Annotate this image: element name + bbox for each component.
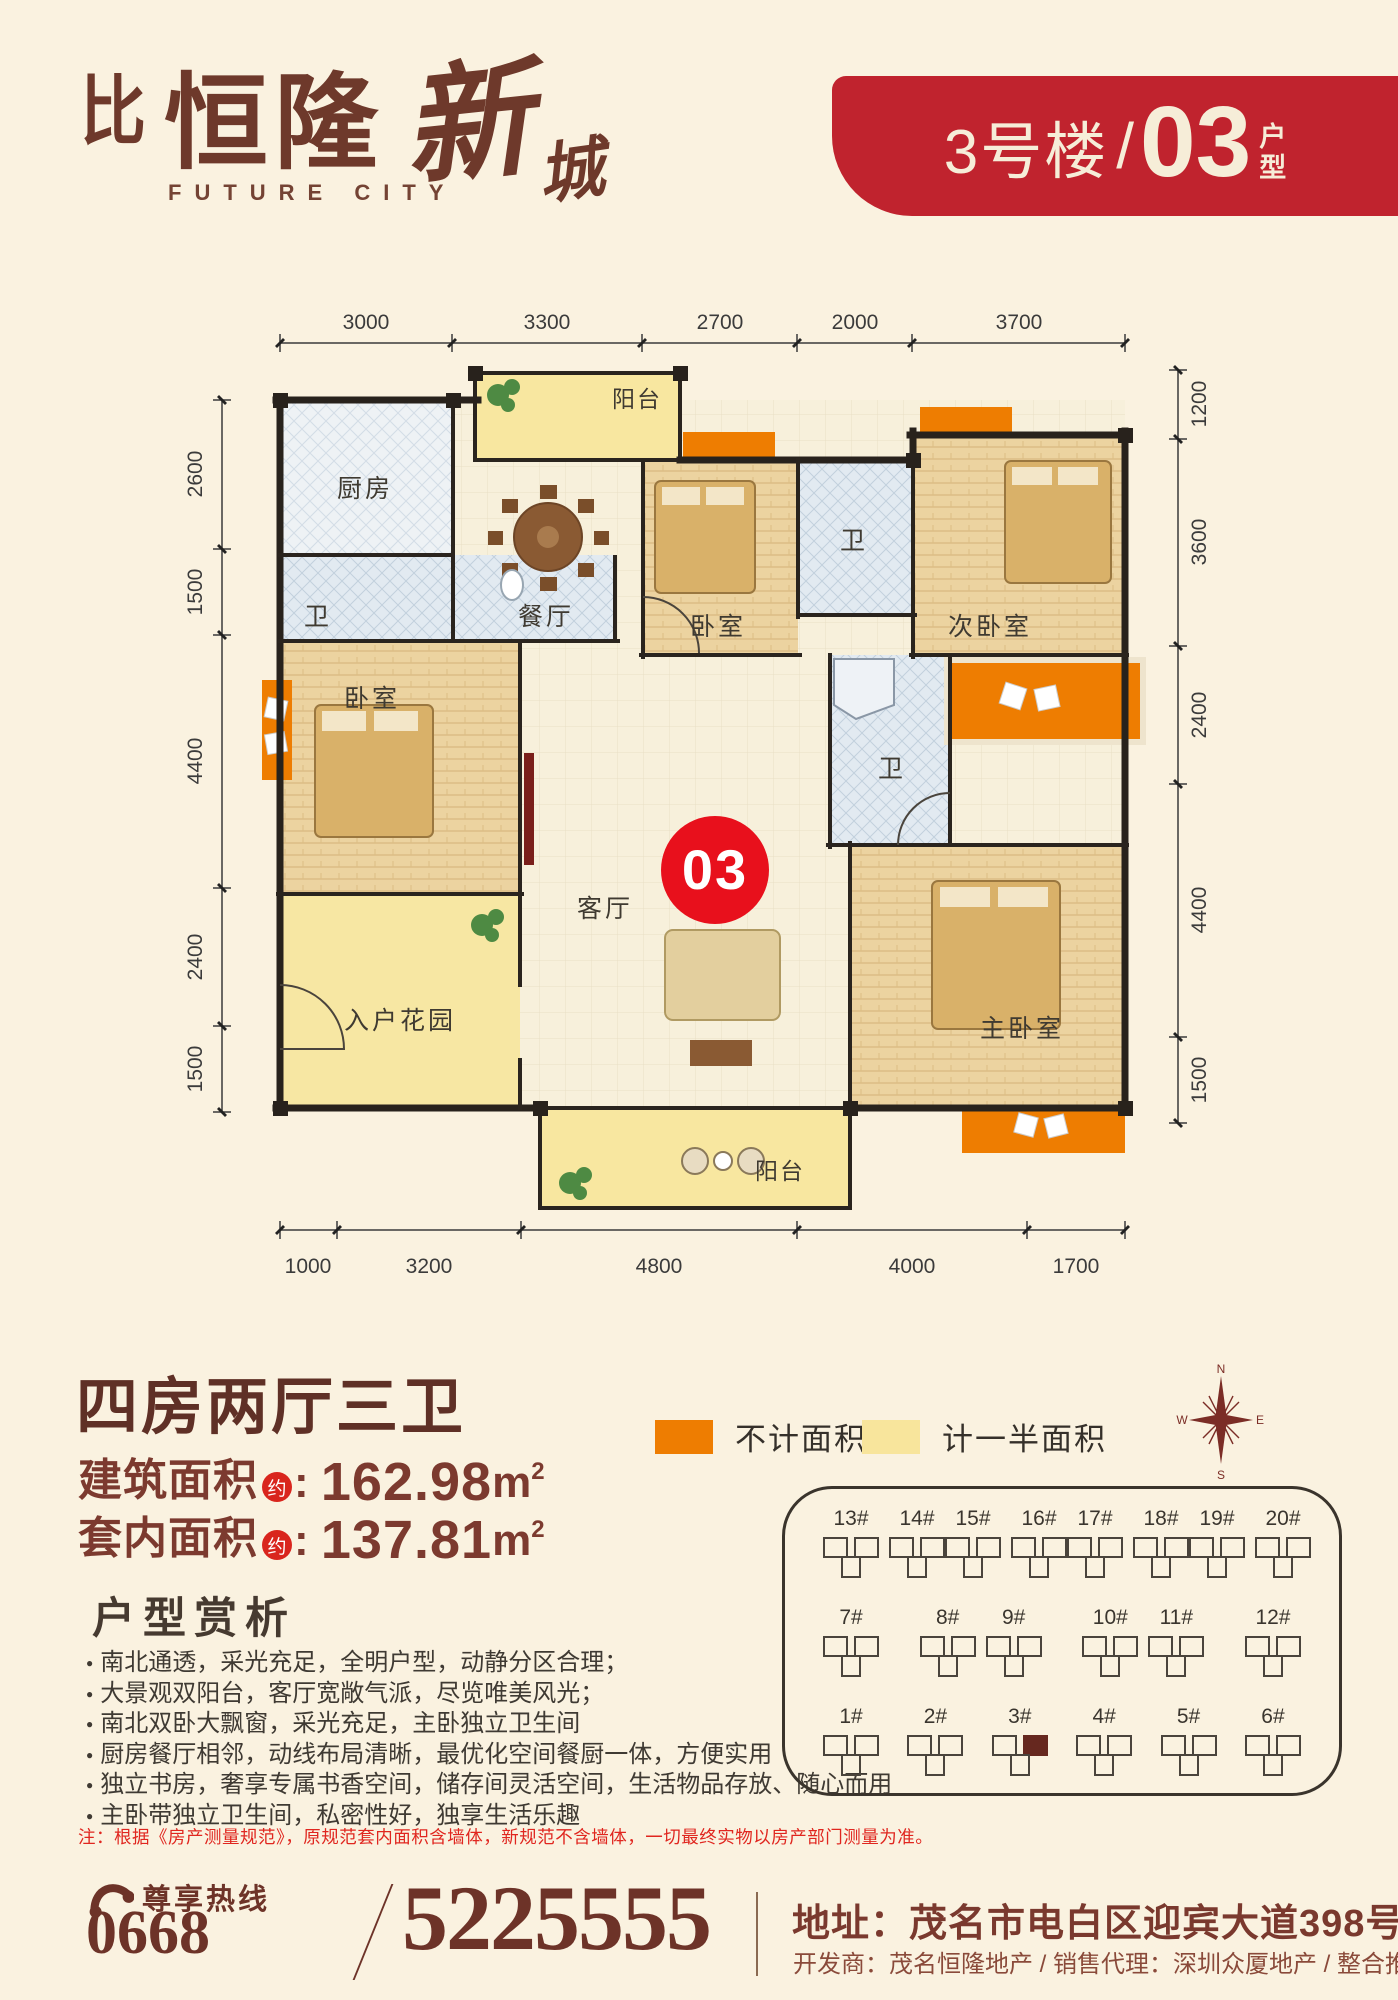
svg-text:3300: 3300	[524, 311, 571, 334]
building-icon	[907, 1731, 963, 1779]
measurement-note: 注：根据《房产测量规范》，原规范套内面积含墙体，新规范不含墙体，一切最终实物以房…	[78, 1824, 933, 1849]
unit-banner: 3号楼 / 03 户 型	[832, 76, 1398, 216]
building-icon	[1148, 1632, 1204, 1680]
hotline-number: 5225555	[402, 1872, 710, 1964]
svg-text:1500: 1500	[1188, 1057, 1211, 1104]
building-icon	[889, 1533, 945, 1581]
svg-text:E: E	[1256, 1413, 1264, 1427]
hotline-slash	[353, 1884, 394, 1980]
building-icon	[823, 1632, 879, 1680]
inner-area-label: 套内面积	[78, 1502, 258, 1566]
analysis-title: 户型赏析	[92, 1584, 296, 1646]
svg-text:1200: 1200	[1188, 381, 1211, 428]
label-bedroom-left: 卧室	[344, 685, 400, 713]
label-bath-top: 卫	[840, 527, 868, 555]
building-icon	[823, 1533, 879, 1581]
unit-badge-number: 03	[682, 838, 748, 901]
layout-title: 四房两厅三卫	[76, 1356, 466, 1446]
footer-divider	[756, 1892, 758, 1976]
label-balcony-top: 阳台	[612, 386, 662, 412]
label-bedroom-top: 卧室	[690, 613, 746, 641]
svg-text:3200: 3200	[406, 1255, 453, 1278]
svg-text:4400: 4400	[1188, 887, 1211, 934]
building-cluster: 8# 9#	[920, 1606, 1042, 1680]
svg-text:1700: 1700	[1053, 1255, 1100, 1278]
legend-no-area: 不计面积	[655, 1414, 867, 1459]
inner-area-value: 137.81	[321, 1515, 492, 1566]
building-cluster: 17# 18#	[1067, 1507, 1189, 1581]
approx-seal: 约	[262, 1472, 292, 1502]
address: 地址：茂名市电白区迎宾大道398号	[792, 1892, 1398, 1947]
label-bath-master: 卫	[878, 755, 906, 783]
siteplan-row-2: 7# 8# 9# 10# 11# 12#	[823, 1606, 1301, 1680]
label-bath-guest: 卫	[304, 603, 332, 631]
bullet-item: 大景观双阳台，客厅宽敞气派，尽览唯美风光；	[86, 1679, 746, 1710]
building-icon	[1133, 1533, 1189, 1581]
hotline-area-code: 0668	[86, 1898, 210, 1969]
svg-text:N: N	[1217, 1362, 1226, 1376]
building-icon-highlighted	[992, 1731, 1048, 1779]
building-cluster: 15# 16#	[945, 1507, 1067, 1581]
siteplan-box: 13# 14# 15# 16# 17# 18# 19# 20# 7# 8# 9#	[782, 1486, 1342, 1796]
label-kitchen: 厨房	[337, 475, 393, 503]
building-icon	[1161, 1731, 1217, 1779]
poster-page: 比 恒隆 新 城 FUTURE CITY 3号楼 / 03 户 型	[0, 0, 1398, 2000]
building-icon	[1255, 1533, 1311, 1581]
bullet-item: 南北双卧大飘窗，采光充足，主卧独立卫生间	[86, 1709, 746, 1740]
label-bedroom-second: 次卧室	[948, 613, 1032, 641]
building-icon	[1076, 1731, 1132, 1779]
svg-text:2400: 2400	[1188, 692, 1211, 739]
banner-type-label: 户 型	[1259, 122, 1286, 184]
svg-text:4000: 4000	[889, 1255, 936, 1278]
svg-text:1000: 1000	[285, 1255, 332, 1278]
banner-separator: /	[1116, 109, 1134, 183]
building-icon	[1245, 1731, 1301, 1779]
building-icon	[1082, 1632, 1138, 1680]
building-icon	[945, 1533, 1001, 1581]
building-icon	[1011, 1533, 1067, 1581]
building-cluster: 12#	[1245, 1606, 1301, 1680]
svg-text:2700: 2700	[697, 311, 744, 334]
building-icon	[986, 1632, 1042, 1680]
unit-badge-circle: 03	[661, 816, 769, 924]
build-area-label: 建筑面积	[78, 1444, 258, 1508]
svg-text:3600: 3600	[1188, 519, 1211, 566]
floorplan: 阳台 厨房 卫 餐厅 卧室 卫 次卧室 卧室 客厅 卫 入户花园 主卧室 阳台 …	[150, 285, 1290, 1295]
siteplan-row-3: 1# 2# 3# 4# 5# 6#	[823, 1705, 1301, 1779]
label-dining: 餐厅	[518, 603, 574, 631]
svg-text:1500: 1500	[184, 569, 207, 616]
bullet-item: 独立书房，奢享专属书香空间，储存间灵活空间，生活物品存放、随心而用	[86, 1770, 746, 1801]
legend-orange-swatch	[655, 1420, 713, 1454]
logo-name-main: 恒隆	[164, 38, 384, 189]
credits: 开发商：茂名恒隆地产 / 销售代理：深圳众厦地产 / 整合推广：广东蓝狮	[793, 1944, 1398, 1979]
building-cluster: 7#	[823, 1606, 879, 1680]
logo-monogram: 比	[80, 51, 146, 161]
building-icon	[1245, 1632, 1301, 1680]
compass-icon: N W E S	[1176, 1362, 1266, 1482]
building-icon	[823, 1731, 879, 1779]
analysis-bullets: 南北通透，采光充足，全明户型，动静分区合理； 大景观双阳台，客厅宽敞气派，尽览唯…	[86, 1648, 746, 1831]
approx-seal: 约	[262, 1530, 292, 1560]
bullet-item: 厨房餐厅相邻，动线布局清晰，最优化空间餐厨一体，方便实用	[86, 1740, 746, 1771]
banner-building: 3号楼	[944, 101, 1108, 191]
svg-text:1500: 1500	[184, 1046, 207, 1093]
svg-text:2000: 2000	[832, 311, 879, 334]
building-cluster: 19# 20#	[1189, 1507, 1311, 1581]
building-cluster: 10# 11#	[1082, 1606, 1204, 1680]
build-area-value: 162.98	[321, 1457, 492, 1508]
label-living: 客厅	[577, 895, 633, 923]
bullet-item: 南北通透，采光充足，全明户型，动静分区合理；	[86, 1648, 746, 1679]
svg-text:2600: 2600	[184, 451, 207, 498]
building-cluster: 13# 14#	[823, 1507, 945, 1581]
svg-text:2400: 2400	[184, 934, 207, 981]
legend-half-area: 计一半面积	[862, 1414, 1107, 1459]
label-master-bedroom: 主卧室	[980, 1015, 1064, 1043]
building-icon	[920, 1632, 976, 1680]
inner-area-line: 套内面积 约 : 137.81 m 2	[78, 1502, 545, 1566]
svg-text:S: S	[1217, 1468, 1225, 1482]
siteplan-row-1: 13# 14# 15# 16# 17# 18# 19# 20#	[823, 1507, 1301, 1581]
legend-yellow-swatch	[862, 1420, 920, 1454]
label-entry-garden: 入户花园	[344, 1007, 456, 1035]
svg-text:W: W	[1176, 1413, 1188, 1427]
build-area-line: 建筑面积 约 : 162.98 m 2	[78, 1444, 545, 1508]
logo-name-en: FUTURE CITY	[168, 180, 456, 206]
banner-unit-number: 03	[1140, 92, 1251, 192]
building-icon	[1189, 1533, 1245, 1581]
floorplan-svg: 阳台 厨房 卫 餐厅 卧室 卫 次卧室 卧室 客厅 卫 入户花园 主卧室 阳台 …	[150, 285, 1290, 1295]
svg-text:3000: 3000	[343, 311, 390, 334]
logo-name-script-2: 城	[531, 114, 610, 218]
svg-text:4400: 4400	[184, 738, 207, 785]
svg-text:4800: 4800	[636, 1255, 683, 1278]
building-icon	[1067, 1533, 1123, 1581]
svg-text:3700: 3700	[996, 311, 1043, 334]
brand-logo: 比 恒隆 新 城 FUTURE CITY	[72, 30, 692, 230]
label-balcony-bottom: 阳台	[755, 1158, 805, 1184]
